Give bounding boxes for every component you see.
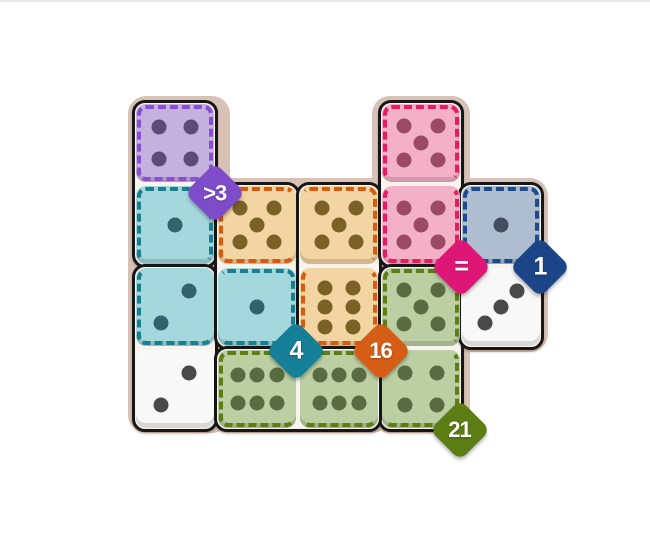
die-r0c0-purple-4[interactable] bbox=[136, 104, 214, 182]
pip bbox=[414, 218, 429, 233]
pip bbox=[396, 235, 411, 250]
pip bbox=[267, 200, 282, 215]
pip bbox=[168, 218, 183, 233]
badge-label: 16 bbox=[370, 338, 392, 364]
page-top-border bbox=[0, 0, 650, 2]
pip bbox=[317, 280, 332, 295]
pip bbox=[351, 367, 366, 382]
pip bbox=[346, 280, 361, 295]
pip bbox=[346, 300, 361, 315]
pip bbox=[317, 300, 332, 315]
pip bbox=[182, 366, 197, 381]
die-r3c0-white-2[interactable] bbox=[136, 350, 214, 428]
pip bbox=[414, 300, 429, 315]
badge-label: 21 bbox=[449, 417, 471, 443]
pip bbox=[332, 218, 347, 233]
pip bbox=[396, 118, 411, 133]
region-border-tan bbox=[301, 269, 377, 345]
die-r2c0-teal-2[interactable] bbox=[136, 268, 214, 346]
pip bbox=[349, 235, 364, 250]
die-r1c2-tan-5[interactable] bbox=[300, 186, 378, 264]
pip bbox=[269, 367, 284, 382]
pip bbox=[396, 317, 411, 332]
pip bbox=[230, 396, 245, 411]
region-border-teal bbox=[137, 269, 213, 345]
pip bbox=[317, 319, 332, 334]
pip bbox=[349, 200, 364, 215]
pip bbox=[183, 120, 198, 135]
pip bbox=[431, 153, 446, 168]
pip bbox=[152, 151, 167, 166]
pip bbox=[431, 118, 446, 133]
die-r0c3-pink-5[interactable] bbox=[382, 104, 460, 182]
pip bbox=[267, 235, 282, 250]
pip bbox=[153, 315, 168, 330]
puzzle-board: >3=141621 bbox=[0, 0, 650, 550]
pip bbox=[250, 396, 265, 411]
pip bbox=[332, 367, 347, 382]
pip bbox=[232, 235, 247, 250]
pip bbox=[314, 200, 329, 215]
pip bbox=[429, 366, 444, 381]
pip bbox=[431, 317, 446, 332]
pip bbox=[314, 235, 329, 250]
pip bbox=[250, 218, 265, 233]
pip bbox=[346, 319, 361, 334]
pip bbox=[182, 284, 197, 299]
pip bbox=[431, 282, 446, 297]
pip bbox=[152, 120, 167, 135]
pip bbox=[398, 366, 413, 381]
pip bbox=[396, 153, 411, 168]
region-border-purple bbox=[137, 105, 213, 181]
pip bbox=[269, 396, 284, 411]
badge-label: 1 bbox=[534, 253, 547, 282]
pip bbox=[312, 367, 327, 382]
pip bbox=[494, 300, 509, 315]
pip bbox=[429, 397, 444, 412]
pip bbox=[477, 316, 492, 331]
pip bbox=[351, 396, 366, 411]
pip bbox=[332, 396, 347, 411]
badge-label: = bbox=[454, 252, 468, 281]
pip bbox=[431, 200, 446, 215]
pip bbox=[398, 397, 413, 412]
pip bbox=[396, 282, 411, 297]
pip bbox=[414, 136, 429, 151]
pip bbox=[153, 397, 168, 412]
pip bbox=[250, 367, 265, 382]
pip bbox=[230, 367, 245, 382]
pip bbox=[183, 151, 198, 166]
badge-label: >3 bbox=[203, 180, 226, 206]
badge-label: 4 bbox=[290, 337, 303, 366]
pip bbox=[312, 396, 327, 411]
pip bbox=[396, 200, 411, 215]
pip bbox=[431, 235, 446, 250]
pip bbox=[250, 300, 265, 315]
pip bbox=[494, 218, 509, 233]
pip bbox=[510, 283, 525, 298]
